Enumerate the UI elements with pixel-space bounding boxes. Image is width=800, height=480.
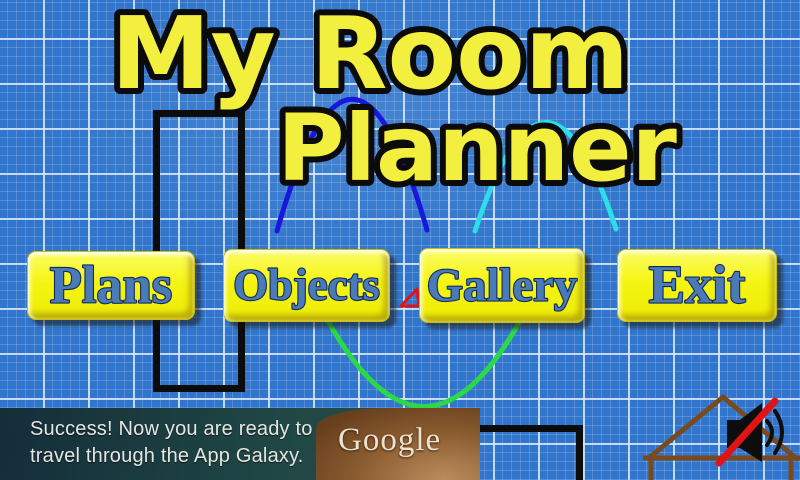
objects-button[interactable]: Objects: [223, 249, 390, 322]
gallery-button[interactable]: Gallery: [419, 248, 585, 323]
google-logo: Google: [338, 422, 441, 459]
sound-wave-icon: [767, 421, 772, 445]
ad-text-line1: Success! Now you are ready to: [30, 416, 313, 443]
objects-button-label: Objects: [233, 260, 380, 310]
red-triangle-sketch: [401, 289, 419, 306]
plans-button-label: Plans: [50, 256, 172, 314]
sound-wave-icon: [775, 411, 782, 453]
green-arc-sketch: [328, 321, 520, 407]
blue-arc-sketch: [277, 99, 427, 231]
blueprint-background: My Room Planner Plans Objects Gallery Ex…: [0, 0, 800, 480]
exit-button[interactable]: Exit: [617, 249, 777, 322]
planet-image: Google: [316, 408, 480, 480]
app-title-line2: Planner: [277, 95, 677, 202]
gallery-button-label: Gallery: [427, 260, 578, 312]
ad-banner[interactable]: Success! Now you are ready to travel thr…: [0, 408, 480, 480]
ad-text: Success! Now you are ready to travel thr…: [30, 416, 313, 470]
mute-sound-button[interactable]: [719, 401, 782, 463]
cyan-arc-sketch: [475, 122, 616, 231]
ad-text-line2: travel through the App Galaxy.: [30, 443, 313, 470]
app-title-line1: My Room: [111, 0, 629, 112]
house-outline-icon: [645, 397, 800, 480]
plans-button[interactable]: Plans: [27, 251, 195, 320]
exit-button-label: Exit: [649, 254, 746, 315]
